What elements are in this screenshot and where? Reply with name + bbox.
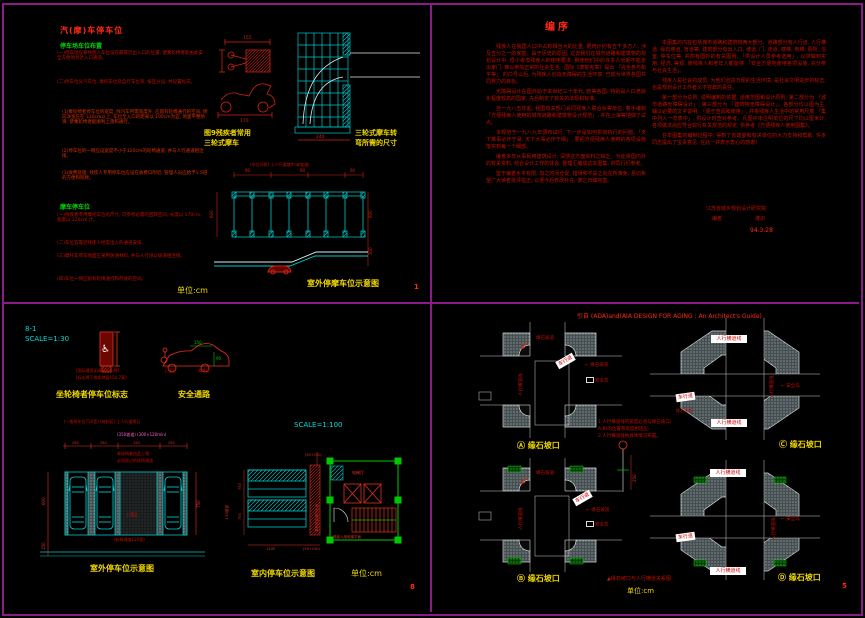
ramp-label-a: 缘石坡道 [536, 336, 554, 341]
dim-moto-width: 155 [243, 35, 252, 41]
island-callout-b: 安全岛 [586, 521, 609, 528]
vertical-divider [430, 3, 432, 612]
paragraph: (二)车位宜靠近残疾人经常出入的通道安排。 [57, 241, 207, 246]
stairs [352, 508, 396, 532]
scale-label-100: SCALE=1:100 [294, 421, 342, 429]
note-line-1: 1.人行横道线的宽度必须与缘石坡口( [598, 420, 672, 425]
paragraph: (三)摩托车停车地面应采用防滑材料, 并与人行道以坡道相连接。 [57, 254, 207, 259]
car-top-1 [69, 477, 87, 529]
boarding-label-2: 乘降区 [198, 369, 210, 374]
wheelchair-icon: ♿ [101, 344, 110, 355]
outdoor-parking-plan [40, 472, 205, 556]
sheet1-diagram-caption: 室外停摩车位示意图 [307, 279, 379, 288]
dim-depth-r: 750 [196, 500, 201, 508]
dim-green-150: 150 [194, 340, 202, 345]
dim-signal: 250 [632, 474, 637, 482]
paragraph: 自一九八五年起, 我国有关部门会同残疾人联合会等单位, 着手编制 「方便残疾人使… [486, 106, 646, 127]
tricycle-side-view [218, 84, 275, 118]
preface-title: 编序 [545, 22, 571, 34]
caption-indoor-parking: 室内停车位示意图 [251, 569, 315, 578]
ramp-label-c: 缘石坡道 [676, 409, 692, 414]
crosswalk-box-c-top: 人行横道线 [711, 335, 747, 343]
paragraph: (3)收费处理: 残疾人专用停车位应设在收费口附近, 管理人员应给予1.5倍的方… [62, 171, 208, 181]
island-callout-c: ← 安全岛 [781, 384, 800, 389]
lift-plan-label: 残疾人用电梯平面 [333, 534, 361, 539]
lobby-hatch-area [331, 466, 343, 480]
dim-grid-width: 240 [316, 134, 325, 140]
signature-name: 谨识 [755, 216, 765, 223]
outdoor-note-3: 乘轮椅者由此上落 [117, 452, 149, 457]
caption-curb-ramp-b: Ⓑ 缘石坡口 [517, 574, 560, 583]
paragraph: 编者多年从事民用建筑设计, 深感这方面资料之缺乏。为此将国内外的有关资料, 结合… [486, 154, 646, 168]
car-top-3 [164, 477, 182, 529]
dim-green-90: 90 [216, 356, 222, 361]
crosswalk-box-d-top: 人行横道线 [710, 469, 746, 477]
detail-ref-label: 8-1 [25, 325, 36, 333]
ramp-label-b: 缘石坡道 [536, 471, 554, 476]
paragraph: (四)车位一侧应留有轮椅通行和存放的空间。 [57, 277, 207, 282]
arrow-icon: ← [585, 363, 589, 368]
paragraph: 本图集的内容包括城市道路和建筑物两大部分。道路部分有人行道, 人行横道, 缘石坡… [652, 40, 826, 75]
sheet8-page-number: 8 [410, 583, 415, 591]
dim-stall-a: 250 [72, 441, 79, 445]
paragraph: 残疾人是社会的成员, 为他们创造方便的生活环境, 是社会文明进步的标志, 也是规… [652, 78, 826, 92]
arrow-icon: ← [586, 508, 590, 513]
outdoor-top-note-2: (350坡道) (300×120min) [117, 433, 166, 438]
tricycle-top-view [219, 39, 270, 72]
outdoor-note-4: 必须经过的轮椅通道 [117, 459, 153, 464]
door-swing [334, 508, 348, 522]
circled-d-icon: Ⓓ [778, 573, 786, 582]
crosswalk-label-b: 人行横道线 [519, 508, 524, 531]
paragraph: 无障碍设计在国外始于本世纪三十年代, 欧美各国, 特别是人口老龄化程度较高的国家… [486, 89, 646, 103]
wheelchair-sign: ♿ [100, 332, 120, 372]
indoor-parking-plan [244, 452, 320, 545]
figure-caption-turning-2: 弯所需的尺寸 [355, 139, 397, 147]
parked-motorcycle-sketch [268, 266, 291, 274]
crosswalk-label-a: 人行横道线 [519, 374, 524, 397]
dim-row-depth-l: 600 [209, 210, 214, 218]
crosswalk-label-d: 人行横道线 [772, 518, 777, 541]
paragraph: (二)停车位分汽车位, 摩托车位及自行车位等, 按区分设, 并设置标志。 [57, 80, 207, 85]
paragraph: 鉴于编者水平有限, 加之时间仓促, 错误和不妥之处在所难免, 恳切希望广大读者批… [486, 171, 646, 185]
dim-stall-2: 90 [300, 168, 306, 173]
preface-column-2: 本图集的内容包括城市道路和建筑物两大部分。道路部分有人行道, 人行横道, 缘石坡… [652, 40, 826, 150]
figure-caption-turning-1: 三轮式摩车转 [355, 129, 397, 137]
elevator-cars [344, 484, 381, 503]
dim-indoor-len: 1200 [266, 547, 275, 551]
parking-row-top-label: (车位间距) 上人行道踏步(或坡道) [250, 163, 310, 168]
dim-stall-b: 250 [100, 441, 107, 445]
sheet5-drawing: 250 [433, 306, 865, 618]
paragraph: 在本图集的编制过程中, 得到了省建委和有关单位的大力支持和帮助, 许多同志提出了… [652, 133, 826, 147]
caption-curb-ramp-a: Ⓐ 缘石坡口 [517, 441, 560, 450]
paragraph: (1)乘轮椅者停车位的宽度, 除汽车所需宽度外, 应留有轮椅通行的空间, 侧向净… [62, 110, 208, 126]
sheet1-unit-label: 单位:cm [177, 286, 208, 295]
dim-stall-1: 90 [245, 168, 251, 173]
paragraph: 第一部分为总则, 说明编制的依据, 适用范围和设计原则; 第二部分为 「城市道路… [652, 95, 826, 130]
dim-stall-c: 250 [168, 441, 175, 445]
signature-date: 94.3.28 [750, 228, 773, 235]
paragraph: (一)残疾者专用摩托车位的尺寸, 可参考必需的回转空间, 长度以 170cm, … [57, 213, 207, 223]
signature-role: 编者 [712, 216, 722, 223]
dim-indoor-b: 750 [238, 513, 242, 520]
dim-aisle: 120 [133, 441, 140, 445]
ramp-label: 1:50坡道 [224, 505, 229, 520]
scale-label-30: SCALE=1:30 [25, 335, 69, 343]
sheet5-bottom-note: ▲缘石坡口与人行横道关系图 [607, 576, 671, 583]
circled-b-icon: Ⓑ [517, 574, 525, 583]
aisle-label: 上落区 [126, 513, 138, 518]
arrow-icon: ← [781, 384, 785, 389]
caption-wheelchair-sign: 坐轮椅者停车位标志 [56, 390, 128, 399]
dim-walk: 150 [41, 542, 46, 550]
crosswalk-box-d-bottom: 人行横道线 [710, 567, 746, 575]
paragraph: 本规范于一九八九年颁布试行, 下一步是如何贯彻执行的问题。「天下难事必作于易, … [486, 130, 646, 151]
sign-dim-note-2: [标志牌下缘距地面150.7高] [76, 376, 127, 381]
boarding-label-1: 上落区 [164, 369, 176, 374]
lift-hall-label: 电梯厅 [352, 469, 364, 475]
horizontal-divider [2, 302, 859, 304]
dim-moto-length: 170 [240, 118, 249, 124]
caption-safe-passage: 安全通路 [178, 390, 210, 399]
signal-post-section [617, 441, 631, 492]
sheet5-source-title: 引自 (ADA)and(AIA DESIGN FOR AGING : An Ar… [577, 314, 762, 321]
crosswalk-label-c: 人行横道线 [770, 376, 775, 399]
curb-ramp-section [214, 252, 368, 266]
circled-a-icon: Ⓐ [517, 441, 525, 450]
island-callout-a: 安全岛 [586, 377, 609, 384]
note-line-2: A,B)的位置和宽度相适应; [598, 427, 649, 432]
island-icon [586, 521, 594, 527]
sheet1-title: 汽(摩)车停车位 [60, 26, 123, 35]
preface-column-1: 残疾人在我国人口中占有相当大的比重, 据统计约有五千多万人, 涉及五分之一的家庭… [486, 44, 646, 188]
outdoor-top-note-1: (一般停车位750宽) (装卸区) 上人行道缘石 [64, 420, 140, 425]
caption-curb-ramp-d: Ⓓ 缘石坡口 [778, 573, 821, 582]
sheet5-unit-label: 单位:cm [627, 587, 654, 595]
note-line-3: 2.人行横道线依具体情况布置。 [598, 434, 661, 439]
island-callout-d: ← 安全岛 [781, 517, 800, 522]
cad-sheet-canvas: 155 170 [0, 0, 865, 618]
caption-curb-ramp-c: Ⓒ 缘石坡口 [779, 440, 822, 449]
paragraph: (2)停车位的一侧应设宽度不小于120cm的轮椅通道, 并与人行通道相连接。 [62, 149, 208, 159]
dim-indoor-walk: (50+150) [303, 547, 320, 551]
paragraph: 残疾人在我国人口中占有相当大的比重, 据统计约有五千多万人, 涉及五分之一的家庭… [486, 44, 646, 86]
figure-caption-tricycle-2: 三轮式摩车 [204, 139, 239, 147]
dim-depth: 600 [41, 497, 46, 505]
dim-row-depth-r: 600 [368, 210, 373, 218]
sheet1-page-number: 1 [414, 283, 419, 291]
dim-stall-3: 90 [350, 168, 356, 173]
sign-dim-note-1: (国际通用无障碍标志牌) [76, 369, 119, 374]
sheet1-heading-1: 停车场车位布置 [60, 44, 102, 51]
circled-c-icon: Ⓒ [779, 440, 787, 449]
aisle-width-label: (轮椅通道120宽) [114, 538, 145, 543]
figure-caption-tricycle-1: 图9残疾者常用 [204, 129, 251, 137]
sheet5-page-number: 5 [842, 582, 847, 590]
arrow-icon: ← [781, 517, 785, 522]
paragraph: (一)停车场应将残疾人车位设在最靠近出入口的位置, 使乘轮椅者能由此安全方便地到… [57, 51, 207, 61]
caption-outdoor-parking: 室外停车位示意图 [90, 564, 154, 573]
crosswalk-box-c-bottom: 人行横道线 [711, 419, 747, 427]
ramp-callout-a: ← 缘石坡道 [585, 363, 608, 368]
sheet8-unit-label: 单位:cm [351, 569, 382, 578]
turning-curves [303, 53, 420, 124]
dim-indoor-a: 750 [238, 483, 242, 490]
car-top-2 [96, 477, 114, 529]
parking-row-plan [232, 192, 365, 237]
walkway-label: 乘轮椅者通行走道 [314, 504, 319, 532]
sheet1-heading-2: 摩车停车位 [60, 205, 90, 212]
dim-road: 300 [368, 247, 373, 255]
dim-indoor-walk-top: (50+150) [305, 453, 322, 457]
island-icon [586, 377, 594, 383]
signature-org: 江苏省城乡规划设计研究院 [706, 206, 766, 213]
ramp-callout-b: ← 缘石坡道 [586, 508, 609, 513]
